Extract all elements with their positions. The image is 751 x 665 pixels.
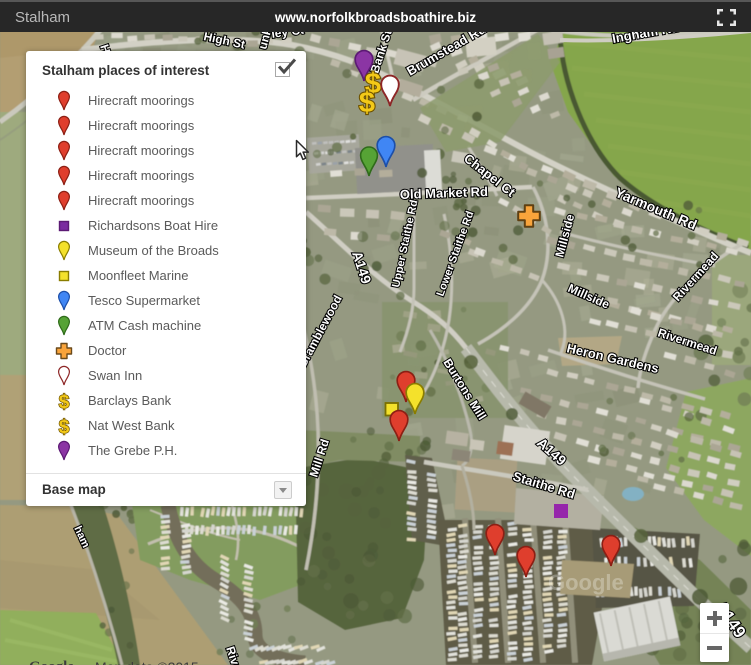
svg-text:$: $ — [59, 417, 70, 436]
svg-text:$: $ — [59, 392, 70, 411]
svg-text:Google: Google — [548, 570, 624, 595]
svg-text:$: $ — [359, 87, 375, 119]
svg-text:Google: Google — [29, 659, 74, 665]
svg-text:Map data ©2015: Map data ©2015 — [95, 659, 199, 665]
svg-text:Old Market Rd: Old Market Rd — [400, 184, 489, 202]
